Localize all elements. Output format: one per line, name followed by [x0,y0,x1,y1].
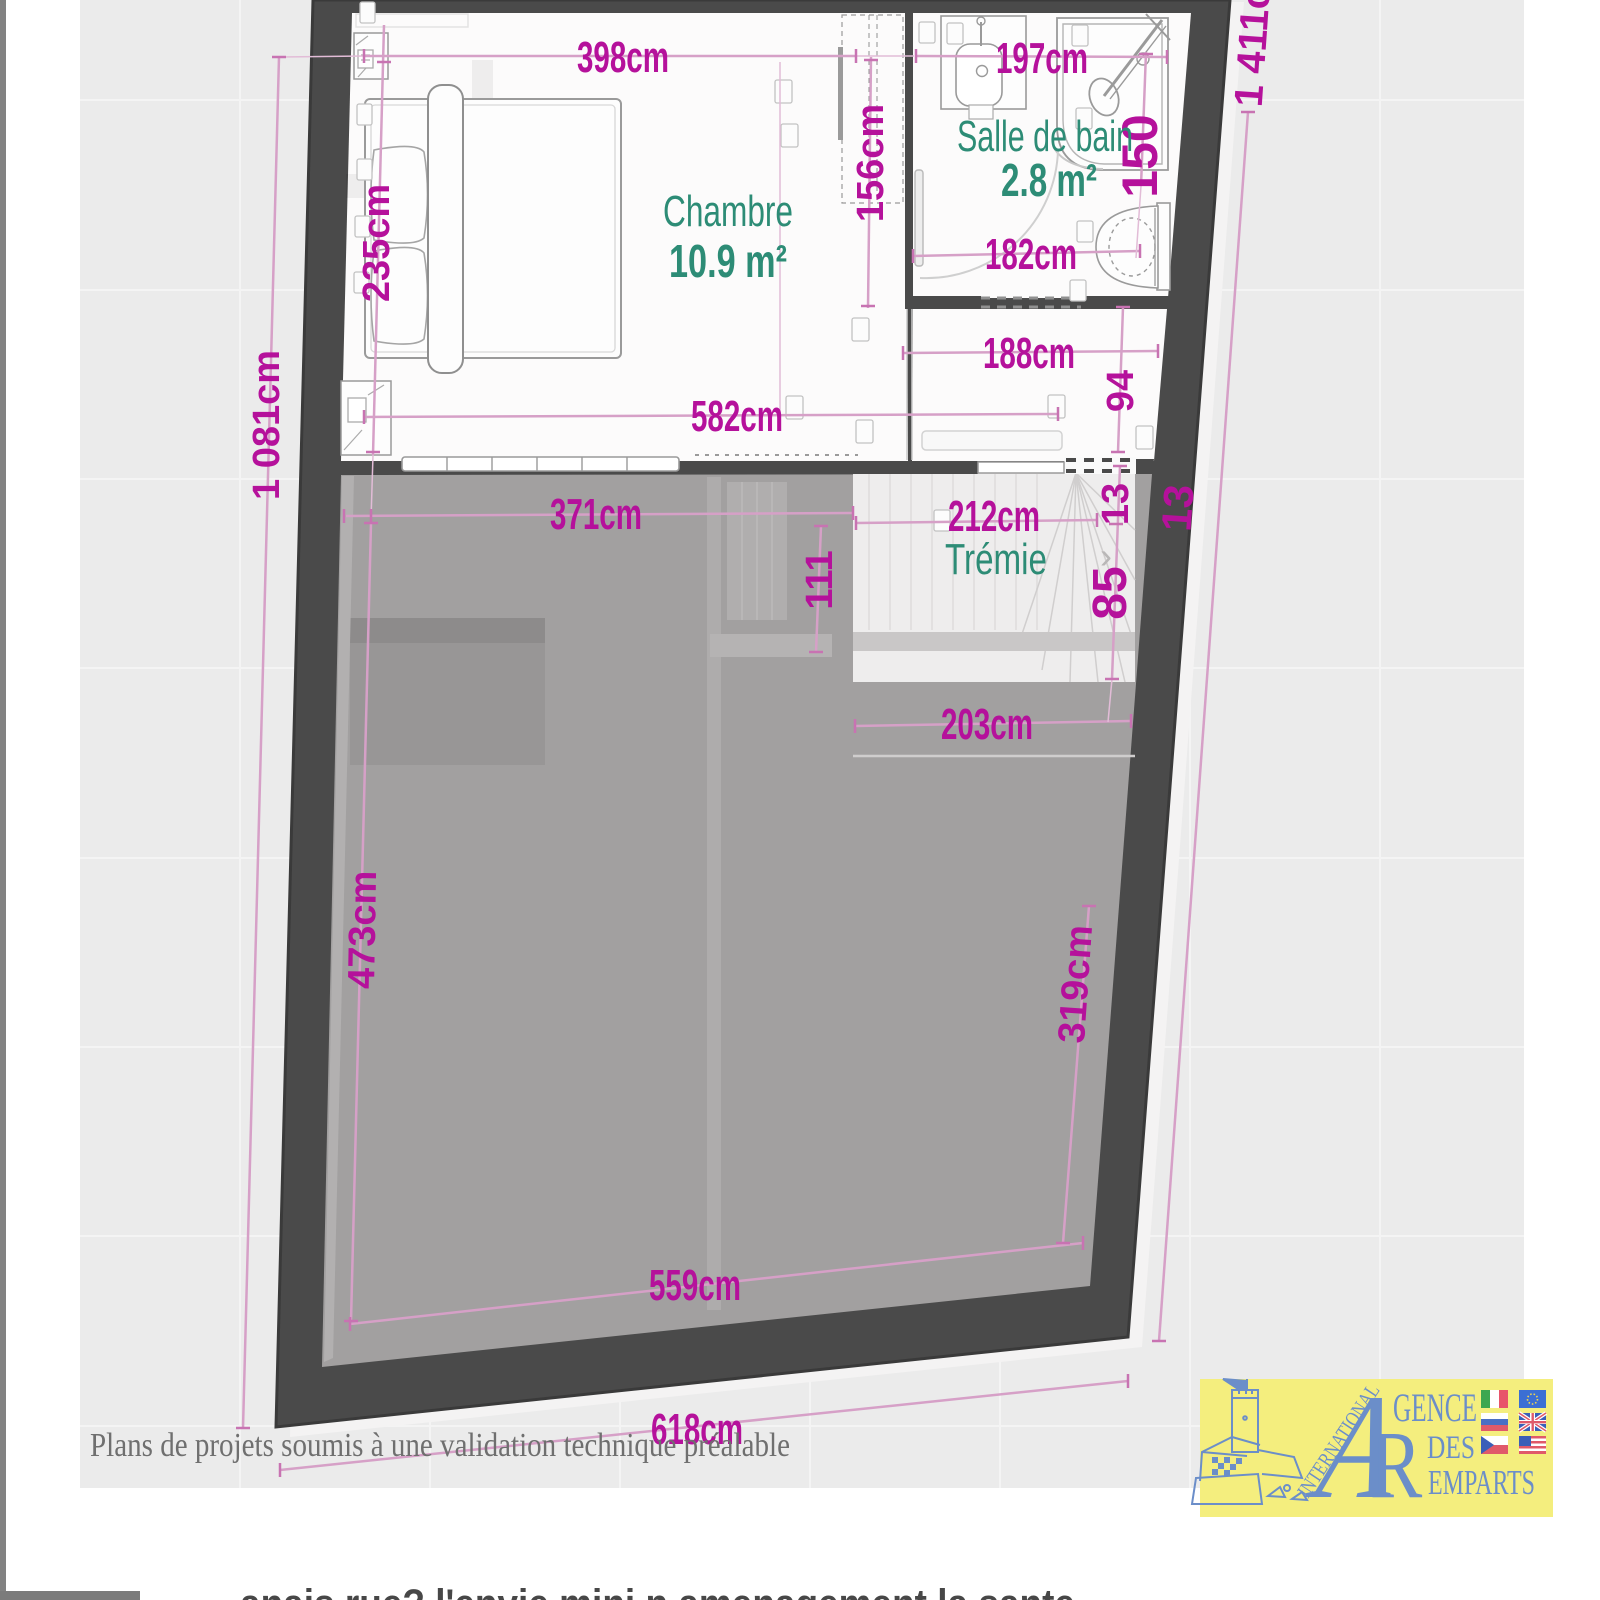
svg-text:371cm: 371cm [550,490,642,539]
svg-text:2.8 m²: 2.8 m² [1001,154,1097,206]
svg-text:DES: DES [1427,1430,1475,1466]
svg-text:188cm: 188cm [983,329,1075,378]
svg-text:398cm: 398cm [577,33,669,82]
svg-text:182cm: 182cm [985,230,1077,279]
svg-text:473cm: 473cm [341,870,385,989]
svg-text:156cm: 156cm [850,104,892,222]
svg-text:anais rue? l'envie mini n amen: anais rue? l'envie mini n amenagement la… [240,1582,1075,1600]
svg-text:Chambre: Chambre [663,187,793,236]
svg-text:94: 94 [1100,370,1142,412]
svg-text:197cm: 197cm [996,34,1088,83]
svg-text:203cm: 203cm [941,700,1033,749]
svg-text:1 081cm: 1 081cm [246,350,288,500]
svg-text:319cm: 319cm [1051,924,1101,1045]
svg-text:Plans de projets soumis à une: Plans de projets soumis à une validation… [90,1427,790,1464]
svg-text:13: 13 [1152,483,1202,533]
svg-text:235cm: 235cm [356,184,398,302]
svg-text:559cm: 559cm [649,1261,741,1310]
svg-text:582cm: 582cm [691,392,783,441]
svg-text:EMPARTS: EMPARTS [1428,1463,1535,1502]
svg-text:Trémie: Trémie [945,535,1047,584]
svg-text:›: › [1100,535,1112,576]
svg-text:GENCE: GENCE [1393,1385,1477,1430]
svg-text:10.9 m²: 10.9 m² [669,235,787,287]
svg-text:111: 111 [799,550,841,609]
svg-text:212cm: 212cm [948,492,1040,541]
svg-text:13: 13 [1095,483,1137,525]
